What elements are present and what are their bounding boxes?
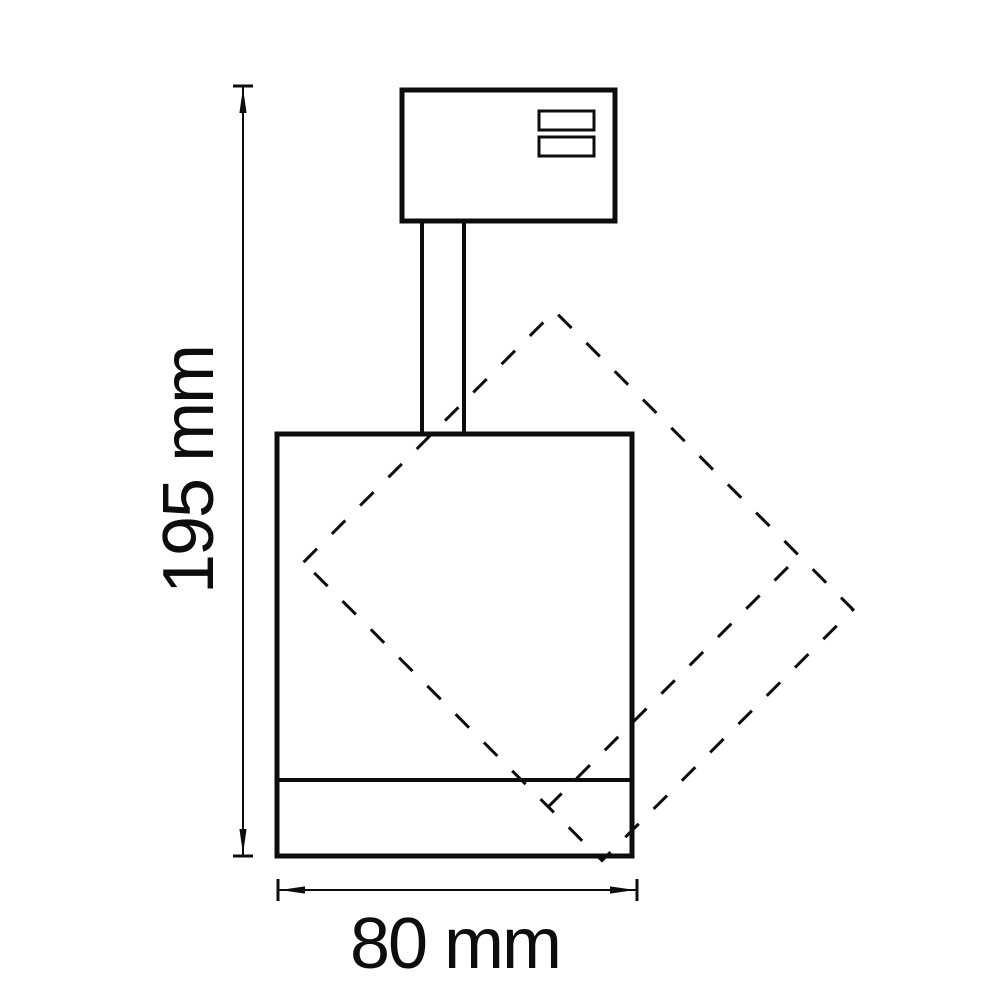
rotated-body-dashed-divider bbox=[548, 556, 799, 807]
height-dimension: 195 mm bbox=[149, 86, 253, 856]
height-dimension-arrow-top bbox=[239, 88, 246, 113]
adapter-slot-bottom bbox=[539, 137, 594, 156]
stem bbox=[422, 223, 464, 434]
width-dimension: 80 mm bbox=[278, 879, 637, 984]
technical-drawing: 195 mm 80 mm bbox=[0, 0, 1000, 1000]
width-dimension-arrow-left bbox=[280, 886, 305, 893]
track-adapter bbox=[402, 90, 615, 221]
lamp-body-outline bbox=[277, 434, 632, 856]
width-dimension-label: 80 mm bbox=[350, 904, 560, 984]
lamp-body bbox=[277, 434, 632, 856]
adapter-slot-top bbox=[539, 111, 594, 130]
drawing-canvas: 195 mm 80 mm bbox=[0, 0, 1000, 1000]
width-dimension-arrow-right bbox=[610, 886, 635, 893]
height-dimension-label: 195 mm bbox=[149, 346, 229, 594]
height-dimension-arrow-bottom bbox=[239, 829, 246, 854]
